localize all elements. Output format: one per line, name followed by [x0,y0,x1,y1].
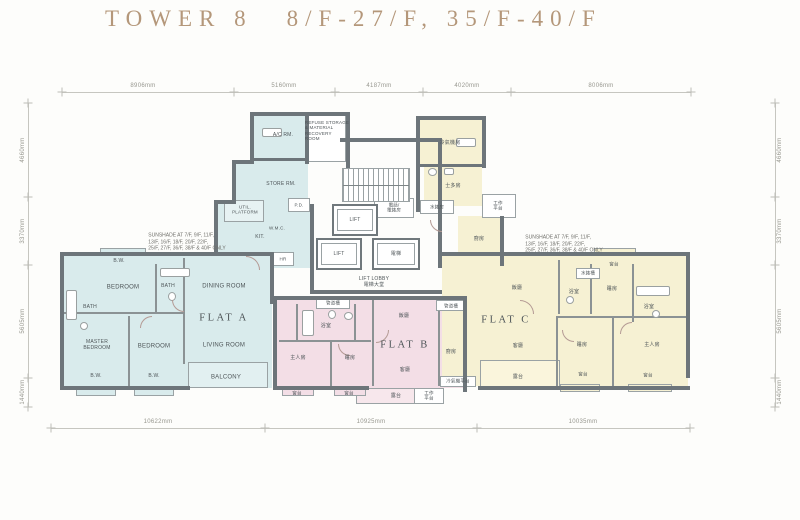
wall-segment [296,304,298,340]
flat-c-store-label: 士多房 [445,183,461,189]
plan-title-tower: TOWER 8 [105,6,253,32]
dimension-tick [771,99,780,108]
dimension-tick [47,424,56,433]
wall-segment [558,260,560,314]
flat-c-wmc-label: 水錶槽 [581,270,595,275]
dimension-label: 5160mm [271,83,296,89]
door-arc [430,220,442,232]
dimension-line-right [775,103,776,407]
dimension-tick [230,88,239,97]
flat-c-dining-label: 飯廳 [512,285,522,291]
floorplan-sheet: TOWER 8 8/F-27/F, 35/F-40/F 8906mm 5160m… [0,0,800,520]
wall-segment [277,386,369,390]
dimension-label: 1440mm [777,379,783,404]
dimension-line-left [28,103,29,407]
flat-a-name: FLAT A [199,311,249,324]
wall-segment [128,316,130,386]
flat-a-bath-label: BATH [161,283,175,289]
flat-c-bw-label: 窗台 [609,261,618,266]
plan-title-floors: 8/F-27/F, 35/F-40/F [287,6,602,32]
lift-lobby-label: LIFT LOBBY 電梯大堂 [359,276,389,289]
water-meter-label: 水錶房 [430,204,444,209]
wall-segment [64,312,185,314]
dimension-line-top [62,92,691,93]
flat-b-duct-label: 管道槽 [444,303,458,308]
wall-segment [155,264,157,312]
dimension-tick [24,261,33,270]
wall-segment [62,252,274,256]
flat-a-bedroom-label: BEDROOM [138,343,170,351]
dimension-label: 10925mm [357,419,386,425]
wall-segment [438,300,440,386]
flat-b-bedroom-label: 睡房 [345,355,355,361]
dimension-tick [686,424,695,433]
flat-c-bath-label: 浴室 [569,289,579,295]
flat-c-bw-label: 窗台 [643,372,652,377]
refuse-room-label: REFUSE STORAGE & MATERIAL RECOVERY ROOM [305,120,349,142]
flat-a-bw-label: B.W. [148,373,159,379]
wall-segment [183,312,185,364]
flat-a-kitchen-label: KIT. [255,234,264,240]
wall-segment [277,296,465,300]
dimension-label: 8906mm [130,83,155,89]
dimension-label: 4187mm [366,83,391,89]
dimension-label: 8006mm [588,83,613,89]
wall-segment [632,264,634,322]
flat-b-bw-label: 窗台 [344,390,353,395]
wall-segment [420,164,482,167]
flat-a-store-label: STORE RM. [266,181,296,187]
sunshade-note-right: SUNSHADE AT 7/F, 9/F, 11/F, 13/F, 16/F, … [525,234,602,254]
flat-b-master-label: 主人房 [290,355,306,361]
flat-b-duct-label: 管道槽 [326,300,340,305]
wall-segment [310,290,442,294]
dimension-tick [24,193,33,202]
flat-c-utility-label: 工作 平台 [493,201,502,212]
lift-label: 電梯 [391,251,401,257]
flat-c-bath-label: 浴室 [644,304,654,310]
wall-segment [556,318,558,386]
dimension-label: 4020mm [454,83,479,89]
dimension-tick [507,88,516,97]
bathtub-icon [160,268,190,277]
toilet-icon [566,296,574,304]
flat-b-balcony-label: 露台 [391,393,401,399]
flat-b-dining-label: 飯廳 [399,313,409,319]
wall-segment [330,342,332,386]
flat-a-bedroom-label: BEDROOM [107,284,139,292]
lift-label: LIFT [349,217,360,223]
dimension-tick [261,424,270,433]
wall-segment [372,300,374,386]
staircase [342,168,410,202]
dimension-label: 10622mm [144,419,173,425]
wall-segment [60,386,190,390]
dimension-label: 3370mm [777,218,783,243]
dimension-label: 4660mm [20,137,26,162]
flat-c-bw-label: 窗台 [578,371,587,376]
pipe-duct-label: P.D. [295,202,304,207]
wall-segment [556,316,688,318]
tel-meter-label: 電話/ 電錶房 [387,203,401,214]
flat-a-master-label: MASTER BEDROOM [83,339,110,352]
flat-a-bw-label: B.W. [113,258,124,264]
bathtub-icon [636,286,670,296]
dimension-tick [24,99,33,108]
flat-c-name: FLAT C [481,313,531,326]
shower-icon [302,310,314,336]
flat-a-bath-label: BATH [83,304,97,310]
dimension-label: 10035mm [569,419,598,425]
wall-segment [686,252,690,378]
flat-c-living-label: 客廳 [513,343,523,349]
toilet-icon [80,322,88,330]
basin-icon [444,168,454,175]
wall-segment [254,158,308,161]
wall-segment [438,138,442,268]
wall-segment [416,116,484,120]
wall-segment [354,304,356,340]
dimension-label: 3370mm [20,218,26,243]
dimension-tick [331,88,340,97]
flat-a-living-label: LIVING ROOM [203,342,245,350]
wall-segment [232,160,236,204]
wall-segment [273,296,277,390]
flat-c-balcony-label: 露台 [513,374,523,380]
wall-segment [279,340,371,342]
flat-a-balcony-label: BALCONY [211,374,241,382]
flat-b-bw-label: 窗台 [292,390,301,395]
sunshade-note-left: SUNSHADE AT 7/F, 9/F, 11/F, 13/F, 16/F, … [148,232,225,252]
flat-c-acroom-label: 冷氣機房 [440,140,461,146]
dimension-tick [771,261,780,270]
toilet-icon [428,168,437,176]
flat-b-ac-platform-label: 冷氣機平台 [446,378,470,383]
dimension-tick [687,88,696,97]
dimension-label: 5605mm [20,308,26,333]
flat-b-name: FLAT B [380,338,430,351]
bathtub-icon [66,290,77,320]
dimension-line-bottom [51,428,690,429]
flat-b-living-label: 客廳 [400,367,410,373]
lift-label: LIFT [333,251,344,257]
wmc-label: W.M.C. [269,225,285,230]
toilet-icon [328,310,336,319]
wall-segment [250,112,350,116]
dimension-label: 4660mm [777,137,783,162]
flat-a-bw-label: B.W. [90,373,101,379]
dimension-label: 5605mm [777,308,783,333]
flat-b-kitchen-label: 廚房 [446,349,456,355]
flat-c-kitchen-label: 廚房 [474,236,484,242]
wall-segment [482,116,486,168]
wall-segment [60,252,64,390]
wall-segment [250,112,254,164]
flat-c-bedroom-label: 睡房 [607,286,617,292]
wall-segment [612,318,614,386]
hose-reel-label: HR [280,256,287,261]
plan-title: TOWER 8 8/F-27/F, 35/F-40/F [105,6,602,32]
flat-b-utility-label: 工作 平台 [424,391,433,402]
flat-a-acroom-label: A/C RM. [273,132,293,138]
flat-b-bath-label: 浴室 [321,323,331,329]
flat-a-utility-label: UTIL. PLATFORM [232,205,258,216]
toilet-icon [652,310,660,318]
dimension-label: 1440mm [20,379,26,404]
dimension-tick [771,193,780,202]
wall-segment [310,204,314,292]
dimension-tick [419,88,428,97]
basin-icon [344,312,353,320]
flat-c-master-label: 主人房 [644,342,660,348]
dimension-tick [58,88,67,97]
wall-segment [478,386,690,390]
flat-c-area [442,256,688,386]
dimension-tick [473,424,482,433]
wall-segment [340,138,414,142]
flat-a-dining-label: DINING ROOM [202,283,246,291]
flat-c-bedroom-label: 睡房 [577,342,587,348]
wall-segment [500,216,504,266]
